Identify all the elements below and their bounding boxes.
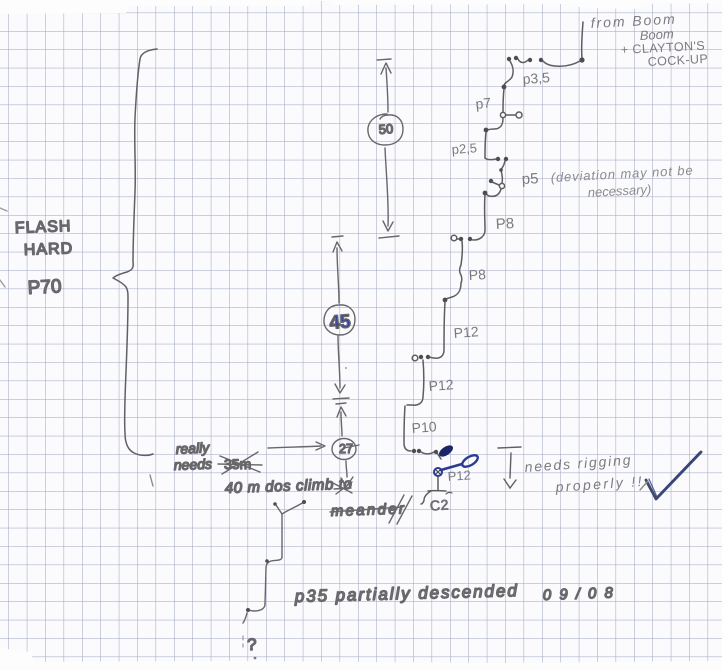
svg-text:p7: p7 <box>475 94 492 112</box>
svg-text:really: really <box>175 439 210 457</box>
svg-text:?: ? <box>247 635 256 654</box>
svg-text:p5: p5 <box>521 170 539 188</box>
svg-text:50: 50 <box>378 121 393 137</box>
svg-text:P12: P12 <box>447 467 471 484</box>
svg-text:P10: P10 <box>411 418 437 436</box>
svg-text:C2: C2 <box>429 497 449 515</box>
svg-text:P70: P70 <box>27 276 62 299</box>
svg-text:45: 45 <box>329 311 352 334</box>
svg-text:FLASH: FLASH <box>15 218 72 237</box>
svg-text:P12: P12 <box>453 323 479 341</box>
svg-text:P8: P8 <box>495 215 514 233</box>
svg-text:p3,5: p3,5 <box>522 69 551 87</box>
svg-text:HARD: HARD <box>24 240 74 259</box>
svg-text:27: 27 <box>339 442 353 456</box>
svg-text:meander: meander <box>331 500 406 520</box>
svg-text:needs: needs <box>174 456 213 473</box>
svg-text:P12: P12 <box>428 376 454 394</box>
svg-text:P8: P8 <box>468 266 486 283</box>
svg-text:p2,5: p2,5 <box>451 140 477 157</box>
